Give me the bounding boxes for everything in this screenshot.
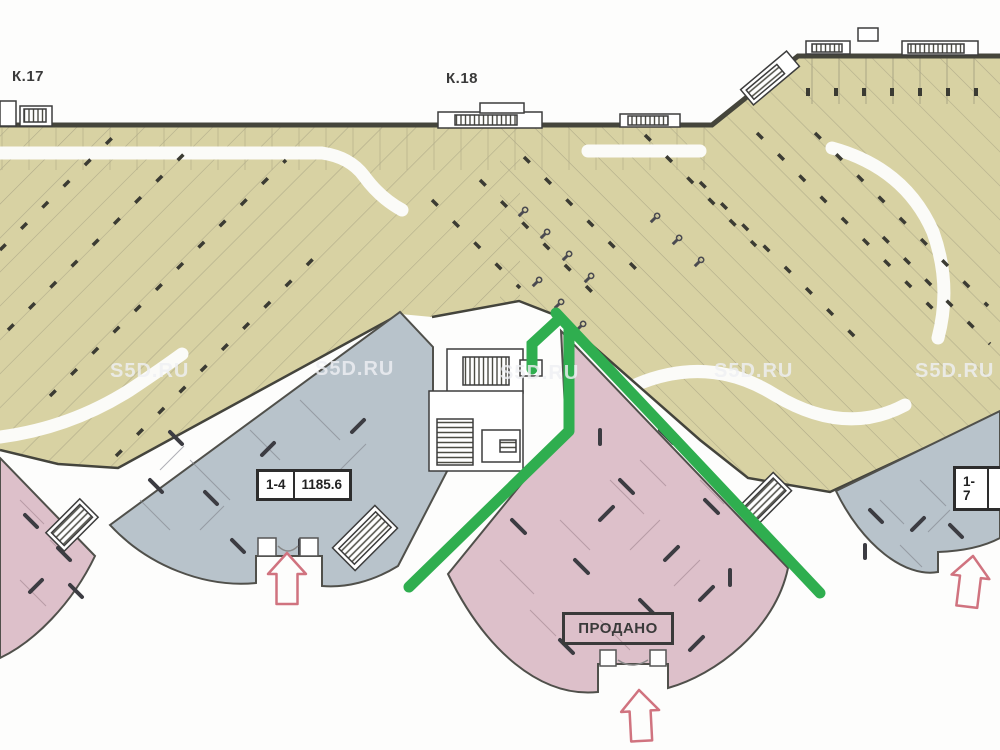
entrance-arrow-right bbox=[948, 554, 992, 609]
floor-plan-canvas bbox=[0, 0, 1000, 750]
entrance-arrow-center bbox=[620, 689, 661, 742]
sold-badge[interactable]: ПРОДАНО bbox=[562, 612, 674, 645]
unit-number: 1-4 bbox=[259, 472, 293, 498]
wing-far-left-pink[interactable] bbox=[0, 458, 95, 658]
unit-info-box-left[interactable]: 1-4 1185.6 bbox=[256, 469, 352, 501]
floor-plan: К.17 К.18 1-4 1185.6 ПРОДАНО 1-7 S5D.RU … bbox=[0, 0, 1000, 750]
unit-number: 1-7 bbox=[956, 469, 987, 508]
building-label-k18: К.18 bbox=[446, 70, 478, 87]
route-segment-top-corner bbox=[532, 320, 558, 369]
unit-area bbox=[987, 469, 1000, 508]
central-core bbox=[429, 349, 542, 471]
entrance-arrow-left bbox=[268, 553, 306, 604]
unit-area: 1185.6 bbox=[293, 472, 350, 498]
building-label-k17: К.17 bbox=[12, 68, 44, 85]
sold-badge-text: ПРОДАНО bbox=[578, 620, 658, 637]
unit-info-box-right[interactable]: 1-7 bbox=[953, 466, 1000, 511]
